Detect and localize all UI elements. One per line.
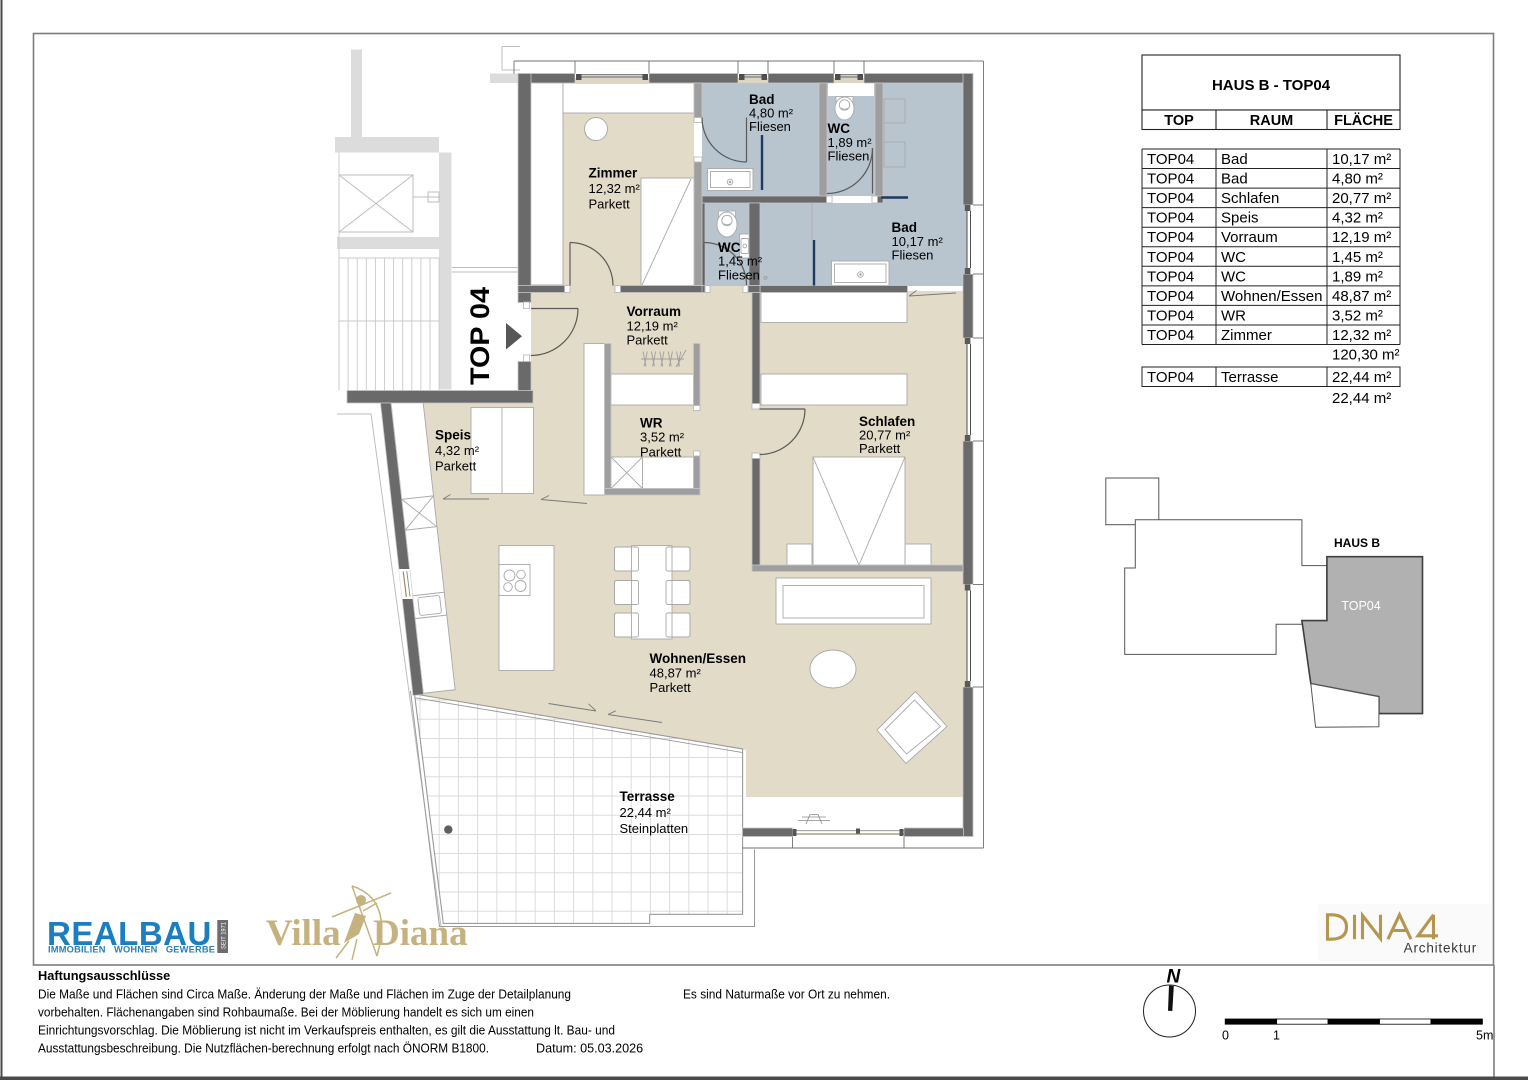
- svg-text:RAUM: RAUM: [1250, 113, 1294, 129]
- svg-text:Diana: Diana: [373, 913, 468, 954]
- svg-text:Ausstattungsbeschreibung. Die: Ausstattungsbeschreibung. Die Nutzfläche…: [38, 1042, 489, 1056]
- svg-text:Fliesen: Fliesen: [892, 248, 934, 263]
- svg-text:48,87 m²: 48,87 m²: [650, 666, 702, 681]
- svg-text:1,89 m²: 1,89 m²: [1332, 268, 1383, 285]
- svg-text:Einrichtungsvorschlag. Die Möb: Einrichtungsvorschlag. Die Möblierung is…: [38, 1024, 615, 1038]
- svg-text:WR: WR: [1221, 307, 1246, 324]
- svg-text:4,32 m²: 4,32 m²: [1332, 210, 1383, 227]
- svg-text:TOP04: TOP04: [1147, 229, 1194, 246]
- svg-text:Vorraum: Vorraum: [627, 304, 682, 319]
- svg-text:Parkett: Parkett: [589, 197, 631, 212]
- svg-text:Speis: Speis: [435, 428, 471, 443]
- svg-text:Parkett: Parkett: [859, 441, 901, 456]
- svg-text:22,44 m²: 22,44 m²: [1332, 390, 1391, 407]
- svg-text:12,32 m²: 12,32 m²: [1332, 327, 1391, 344]
- svg-text:TOP04: TOP04: [1147, 171, 1194, 188]
- svg-text:Parkett: Parkett: [640, 445, 682, 460]
- svg-text:WC: WC: [1221, 268, 1246, 285]
- svg-text:20,77 m²: 20,77 m²: [1332, 190, 1391, 207]
- svg-text:Terrasse: Terrasse: [1221, 369, 1279, 386]
- svg-text:SEIT 1971: SEIT 1971: [221, 922, 228, 949]
- svg-text:Datum: 05.03.2026: Datum: 05.03.2026: [536, 1042, 643, 1056]
- svg-text:Architektur: Architektur: [1404, 941, 1477, 956]
- svg-text:Die Maße und Flächen sind Circ: Die Maße und Flächen sind Circa Maße. Än…: [38, 988, 571, 1002]
- svg-text:Haftungsausschlüsse: Haftungsausschlüsse: [38, 968, 170, 983]
- svg-text:Zimmer: Zimmer: [589, 166, 639, 181]
- svg-text:TOP04: TOP04: [1147, 327, 1194, 344]
- svg-text:TOP04: TOP04: [1147, 369, 1194, 386]
- svg-text:12,19 m²: 12,19 m²: [627, 319, 679, 334]
- svg-text:12,19 m²: 12,19 m²: [1332, 229, 1391, 246]
- svg-text:Wohnen/Essen: Wohnen/Essen: [650, 651, 747, 666]
- svg-text:FLÄCHE: FLÄCHE: [1334, 112, 1393, 129]
- svg-text:HAUS B: HAUS B: [1334, 536, 1380, 550]
- svg-text:Bad: Bad: [1221, 151, 1248, 168]
- svg-text:22,44 m²: 22,44 m²: [1332, 369, 1391, 386]
- svg-text:4,80 m²: 4,80 m²: [1332, 171, 1383, 188]
- svg-text:WR: WR: [640, 416, 663, 431]
- svg-text:48,87 m²: 48,87 m²: [1332, 288, 1391, 305]
- svg-text:22,44 m²: 22,44 m²: [620, 805, 672, 820]
- svg-text:120,30 m²: 120,30 m²: [1332, 347, 1400, 364]
- svg-text:Bad: Bad: [1221, 171, 1248, 188]
- svg-text:Speis: Speis: [1221, 210, 1259, 227]
- svg-text:1,45 m²: 1,45 m²: [1332, 249, 1383, 266]
- svg-text:WC: WC: [828, 121, 851, 136]
- svg-text:TOP04: TOP04: [1147, 249, 1194, 266]
- svg-text:Parkett: Parkett: [627, 333, 669, 348]
- svg-text:12,32 m²: 12,32 m²: [589, 181, 641, 196]
- svg-text:Fliesen: Fliesen: [749, 119, 791, 134]
- svg-text:5m: 5m: [1476, 1029, 1493, 1043]
- svg-text:Es sind Naturmaße vor Ort zu n: Es sind Naturmaße vor Ort zu nehmen.: [683, 988, 890, 1002]
- svg-text:Vorraum: Vorraum: [1221, 229, 1278, 246]
- svg-text:3,52 m²: 3,52 m²: [1332, 307, 1383, 324]
- svg-text:Fliesen: Fliesen: [828, 149, 870, 164]
- svg-text:Schlafen: Schlafen: [1221, 190, 1279, 207]
- svg-text:Terrasse: Terrasse: [620, 789, 676, 804]
- svg-text:TOP04: TOP04: [1147, 268, 1194, 285]
- svg-text:TOP04: TOP04: [1341, 599, 1380, 613]
- svg-text:TOP04: TOP04: [1147, 288, 1194, 305]
- svg-text:Steinplatten: Steinplatten: [620, 821, 689, 836]
- svg-text:Parkett: Parkett: [650, 680, 692, 695]
- svg-text:Villa: Villa: [266, 913, 341, 954]
- svg-text:HAUS B - TOP04: HAUS B - TOP04: [1212, 77, 1331, 94]
- svg-text:WC: WC: [1221, 249, 1246, 266]
- svg-text:Fliesen: Fliesen: [718, 268, 760, 283]
- svg-text:Wohnen/Essen: Wohnen/Essen: [1221, 288, 1322, 305]
- svg-text:4,32 m²: 4,32 m²: [435, 443, 480, 458]
- svg-text:vorbehalten. Flächenangaben si: vorbehalten. Flächenangaben sind Rohbaum…: [38, 1006, 534, 1020]
- svg-text:1,45 m²: 1,45 m²: [718, 254, 763, 269]
- svg-text:N: N: [1167, 967, 1182, 988]
- svg-text:TOP 04: TOP 04: [465, 287, 495, 385]
- svg-text:TOP: TOP: [1164, 113, 1194, 129]
- svg-text:TOP04: TOP04: [1147, 151, 1194, 168]
- svg-text:Bad: Bad: [892, 220, 918, 235]
- svg-text:TOP04: TOP04: [1147, 190, 1194, 207]
- svg-text:Parkett: Parkett: [435, 459, 477, 474]
- svg-text:1: 1: [1273, 1029, 1280, 1043]
- svg-text:10,17 m²: 10,17 m²: [1332, 151, 1391, 168]
- svg-text:Zimmer: Zimmer: [1221, 327, 1272, 344]
- svg-text:IMMOBILIEN WOHNEN GEWERBE: IMMOBILIEN WOHNEN GEWERBE: [48, 945, 215, 955]
- svg-text:TOP04: TOP04: [1147, 210, 1194, 227]
- svg-text:3,52 m²: 3,52 m²: [640, 430, 685, 445]
- svg-text:0: 0: [1222, 1029, 1229, 1043]
- svg-text:TOP04: TOP04: [1147, 307, 1194, 324]
